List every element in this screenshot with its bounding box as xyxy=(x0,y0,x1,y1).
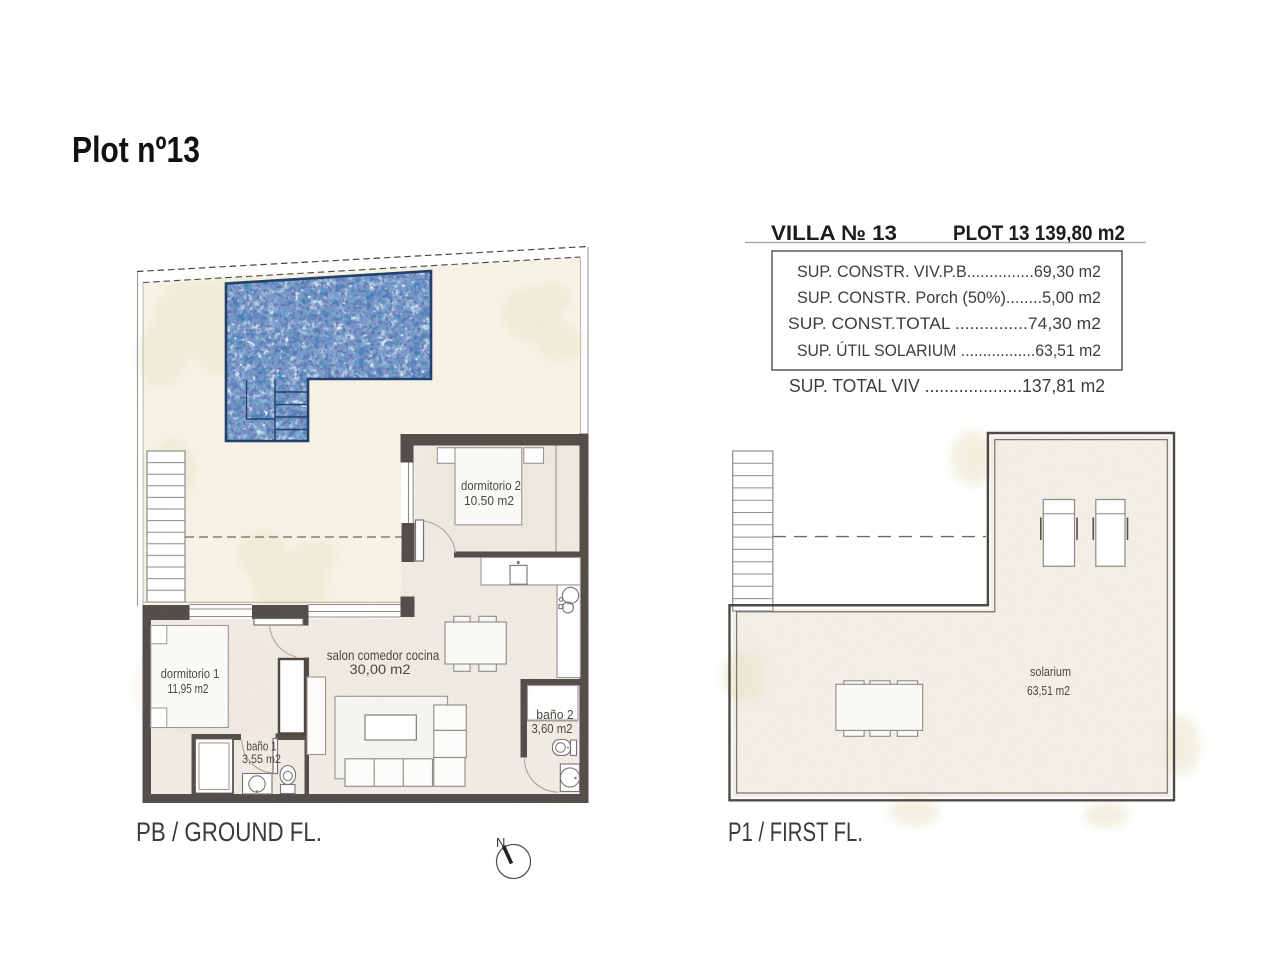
svg-text:SUP. CONST.TOTAL .............: SUP. CONST.TOTAL ...............74,30 m2 xyxy=(788,314,1101,333)
svg-text:SUP. CONSTR. Porch (50%)......: SUP. CONSTR. Porch (50%)........5,00 m2 xyxy=(797,288,1101,307)
svg-text:PLOT 13 139,80 m2: PLOT 13 139,80 m2 xyxy=(953,222,1125,245)
svg-text:SUP. CONSTR. VIV.P.B..........: SUP. CONSTR. VIV.P.B...............69,30… xyxy=(797,262,1101,281)
svg-text:Plot nº13: Plot nº13 xyxy=(72,129,200,170)
svg-text:VILLA № 13: VILLA № 13 xyxy=(771,222,897,245)
svg-text:P1 / FIRST FL.: P1 / FIRST FL. xyxy=(728,817,863,847)
svg-text:SUP. TOTAL VIV ...............: SUP. TOTAL VIV ....................137,8… xyxy=(789,375,1105,396)
svg-text:PB / GROUND FL.: PB / GROUND FL. xyxy=(136,817,322,847)
svg-text:SUP. ÚTIL SOLARIUM ...........: SUP. ÚTIL SOLARIUM .................63,5… xyxy=(797,341,1101,360)
svg-text:N: N xyxy=(496,835,505,850)
